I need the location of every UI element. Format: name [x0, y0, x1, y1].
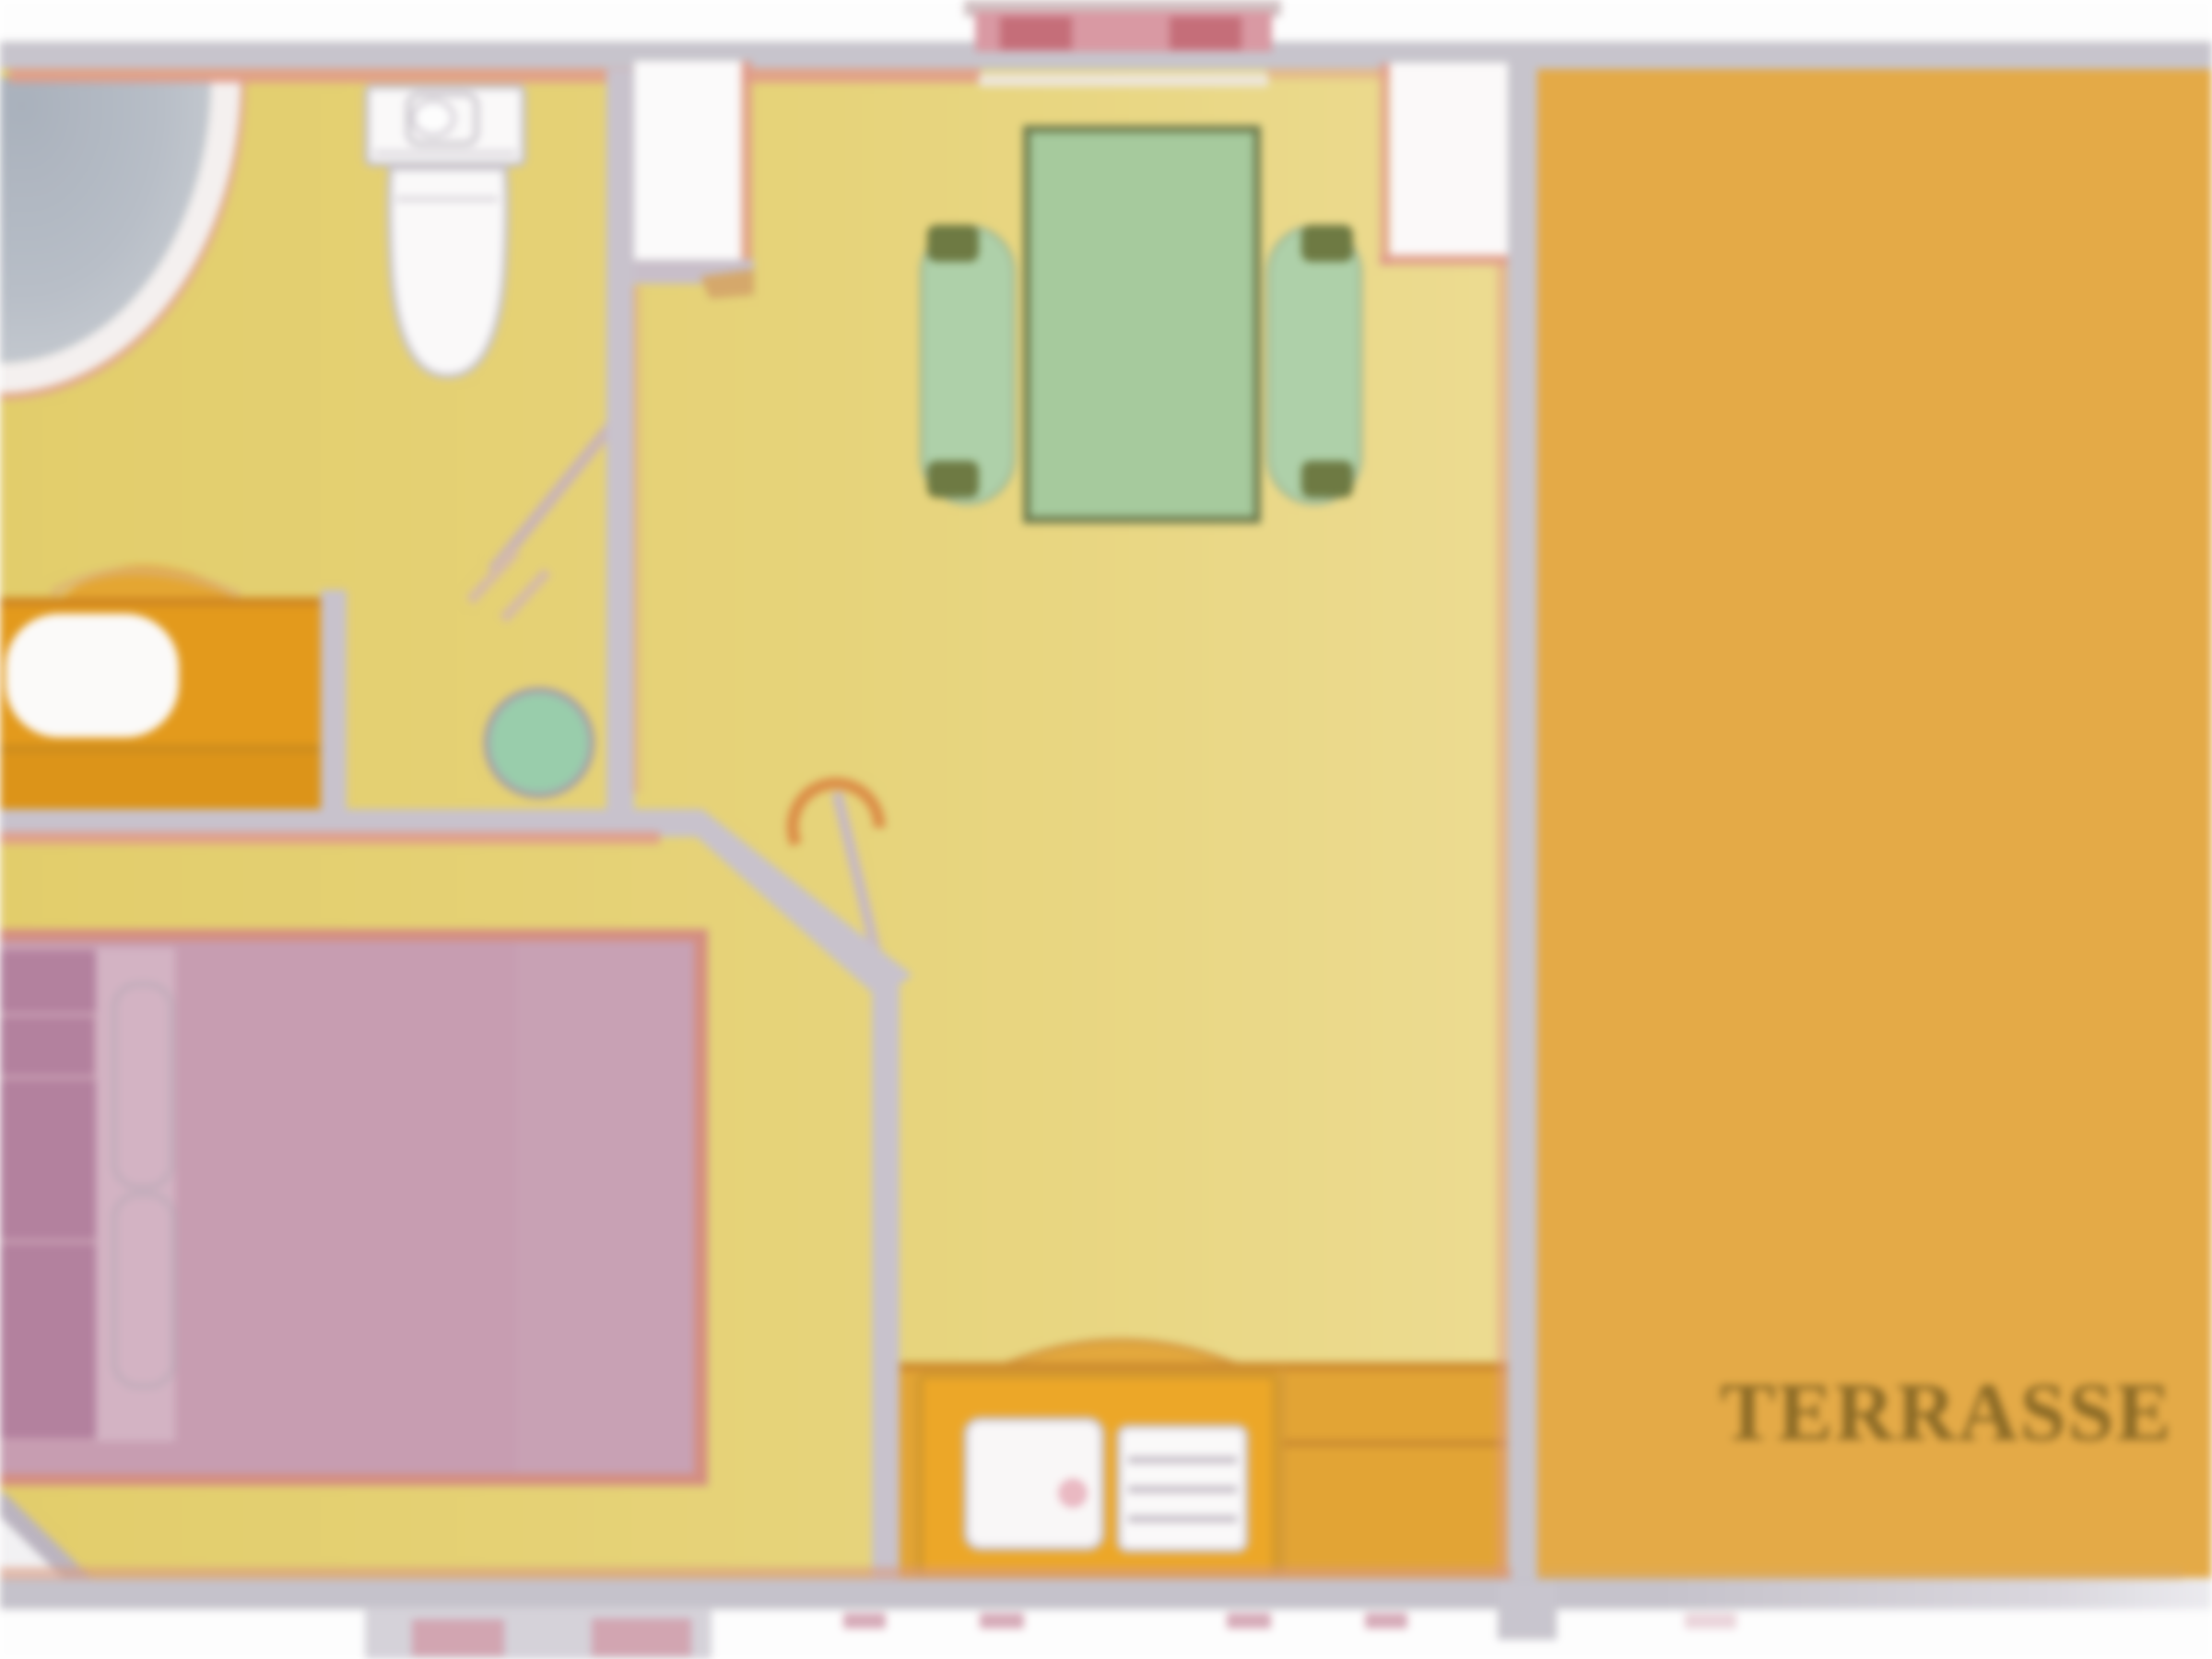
svg-text:TERRASSE: TERRASSE	[1720, 1367, 2172, 1458]
